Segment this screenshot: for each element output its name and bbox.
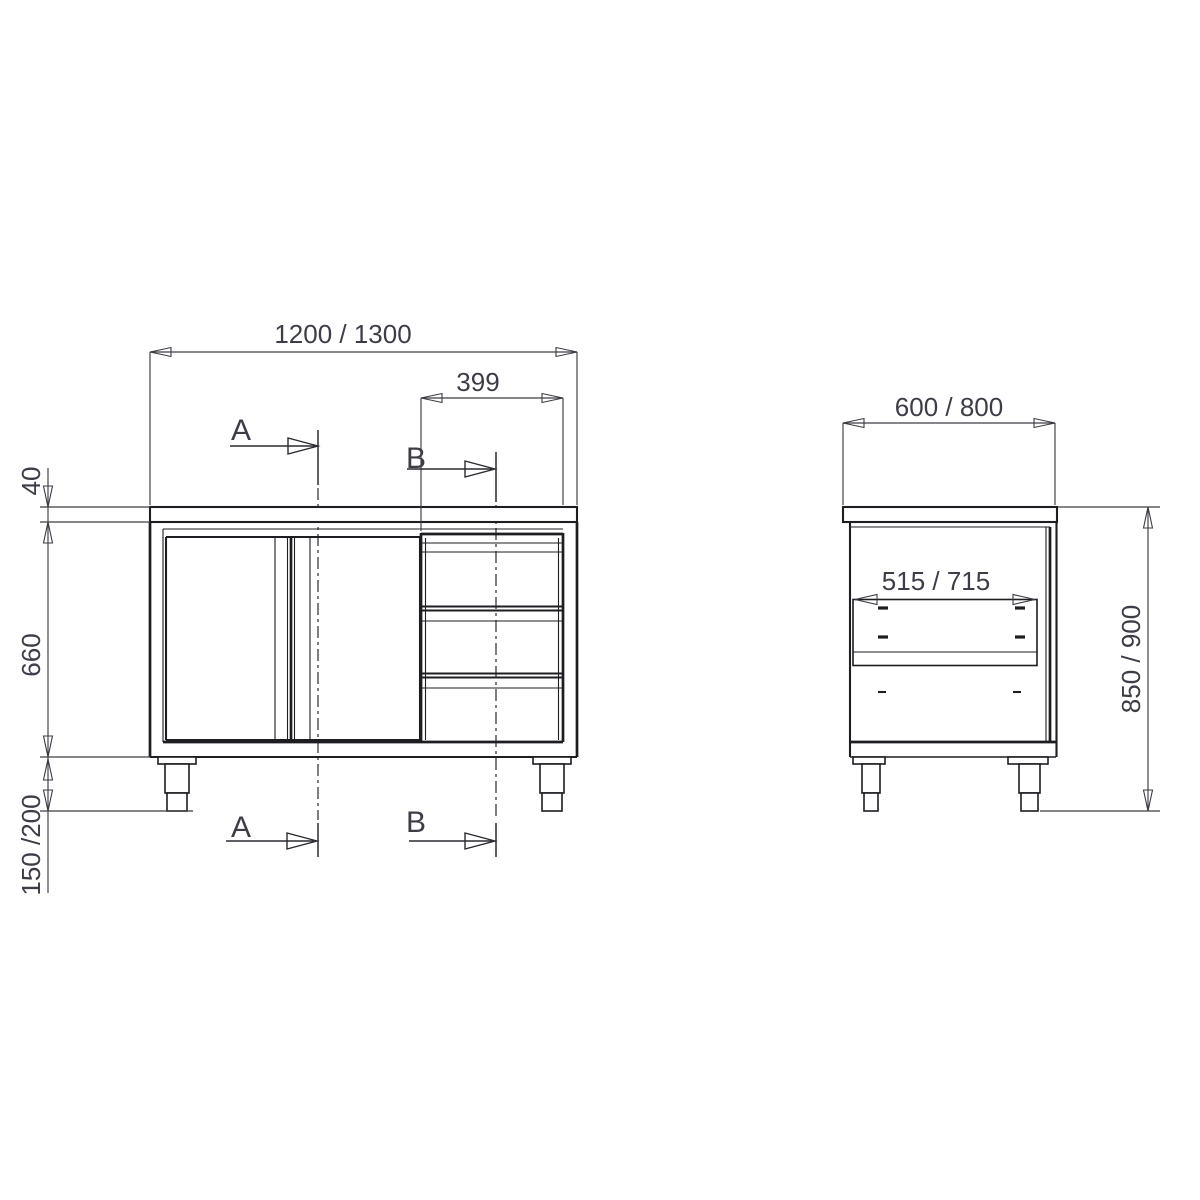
section-a-label-bottom: A: [231, 811, 251, 844]
side-view: 600 / 800 515 / 715 850 / 900: [843, 392, 1160, 811]
worktop-thickness-label: 40: [16, 467, 46, 496]
front-right-leg-body: [540, 764, 564, 793]
section-a-label-top: A: [231, 414, 251, 447]
cabinet-technical-drawing: 1200 / 1300 399 40 660 150 /200: [0, 0, 1200, 1200]
side-back-leg-foot: [1021, 793, 1038, 811]
technical-drawing-page: 1200 / 1300 399 40 660 150 /200: [0, 0, 1200, 1200]
inner-cross-panel: [853, 600, 1037, 693]
side-back-leg-body: [1019, 764, 1040, 793]
side-worktop: [843, 507, 1057, 522]
drawer-unit: [421, 533, 563, 742]
side-legs: [853, 757, 1048, 811]
sliding-doors: [166, 537, 420, 740]
depth-label: 600 / 800: [895, 392, 1003, 422]
front-right-leg-flange: [533, 757, 571, 764]
front-right-leg-foot: [542, 793, 562, 811]
front-legs: [158, 757, 571, 811]
section-a-marks: A A: [226, 414, 318, 857]
overall-width-label: 1200 / 1300: [274, 319, 411, 349]
side-front-leg-body: [862, 764, 880, 793]
overall-height-label: 850 / 900: [1116, 605, 1146, 713]
side-front-leg-foot: [864, 793, 878, 811]
section-b-label-bottom: B: [406, 806, 426, 839]
front-view: 1200 / 1300 399 40 660 150 /200: [16, 319, 577, 896]
front-left-leg-body: [165, 764, 189, 793]
body-height-label: 660: [16, 633, 46, 676]
dim-depth: 600 / 800: [843, 392, 1055, 505]
leg-height-label: 150 /200: [16, 794, 46, 895]
dim-overall-width: 1200 / 1300: [150, 319, 577, 505]
side-back-leg-flange: [1008, 757, 1048, 764]
drawer-width-label: 399: [456, 367, 499, 397]
front-worktop: [150, 507, 577, 522]
dim-overall-height: 850 / 900: [1040, 507, 1160, 811]
inner-width-label: 515 / 715: [882, 566, 990, 596]
side-front-leg-flange: [853, 757, 885, 764]
front-left-leg-flange: [158, 757, 196, 764]
section-b-label-top: B: [406, 442, 426, 475]
front-left-leg-foot: [167, 793, 187, 811]
